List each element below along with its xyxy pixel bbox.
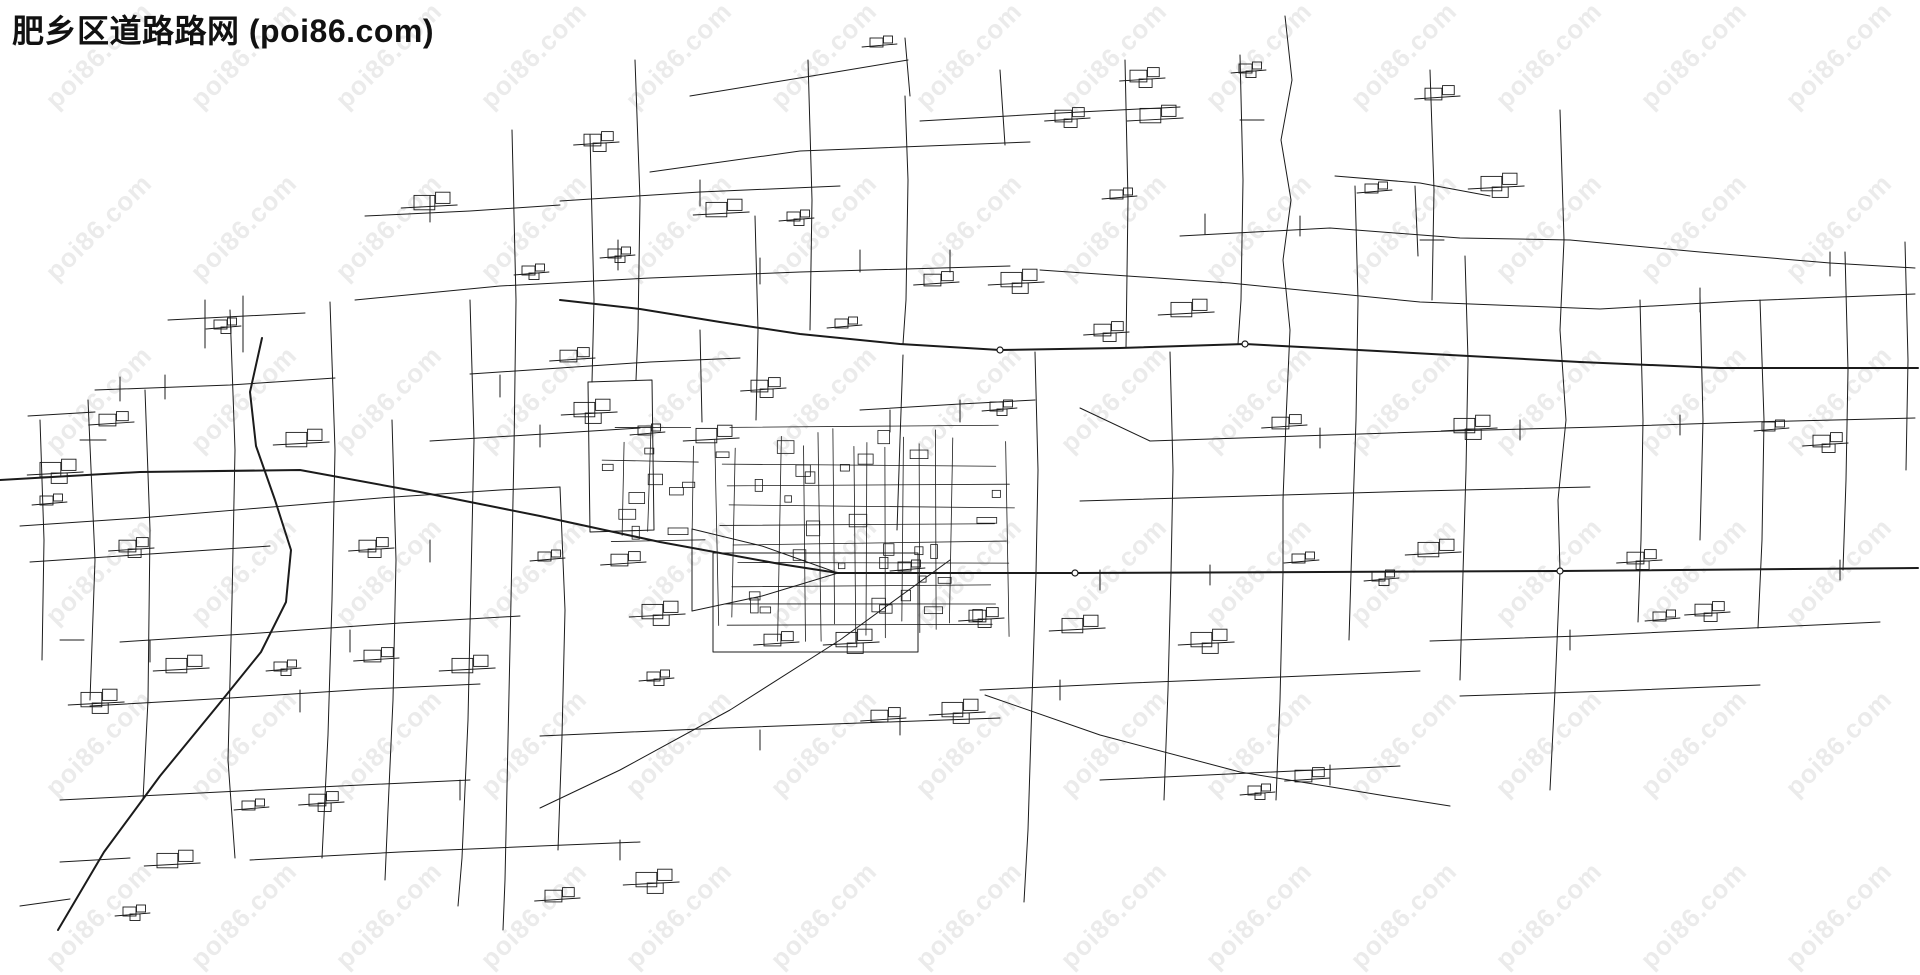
village-cluster	[1704, 613, 1717, 621]
village-road	[115, 913, 150, 916]
village-road	[861, 718, 907, 721]
village-cluster	[602, 132, 614, 141]
village-cluster	[1440, 539, 1454, 550]
village-road	[683, 438, 739, 441]
town-block	[931, 545, 938, 559]
page-title: 肥乡区道路路网 (poi86.com)	[12, 6, 434, 52]
village-cluster	[647, 883, 663, 893]
main-road	[0, 470, 838, 573]
village-cluster	[653, 615, 669, 625]
village-cluster	[1306, 552, 1315, 559]
road	[143, 390, 150, 800]
village-road	[1084, 332, 1130, 335]
village-road	[1284, 560, 1319, 563]
village-cluster	[128, 549, 141, 557]
town-street	[854, 446, 856, 642]
road	[897, 355, 903, 530]
road	[28, 412, 95, 416]
village-cluster	[1012, 283, 1028, 293]
road	[690, 60, 908, 96]
town-street	[692, 446, 693, 532]
village-road	[89, 422, 135, 425]
road	[1758, 300, 1764, 628]
road	[1460, 256, 1468, 680]
road	[355, 266, 1010, 300]
village-cluster	[801, 210, 810, 217]
road-network-svg	[0, 0, 1920, 942]
town-block	[619, 509, 636, 519]
village-cluster	[288, 660, 297, 667]
village-road	[1262, 425, 1308, 428]
village-cluster	[1476, 415, 1490, 426]
village-cluster	[642, 604, 663, 618]
village-cluster	[166, 658, 187, 672]
village-road	[550, 358, 596, 361]
road-junction-node	[1072, 570, 1078, 576]
village-cluster	[51, 473, 67, 483]
village-road	[1127, 118, 1183, 121]
village-road	[1685, 612, 1731, 615]
village-cluster	[696, 428, 717, 442]
village-cluster	[536, 264, 545, 271]
town-block	[793, 550, 806, 561]
town-block	[858, 454, 873, 464]
road	[1080, 408, 1150, 441]
village-road	[823, 642, 879, 645]
town-street	[727, 624, 992, 625]
village-cluster	[382, 648, 394, 657]
road	[1150, 418, 1915, 441]
road	[1638, 300, 1643, 622]
village-road	[144, 863, 200, 866]
village-road	[1120, 78, 1166, 81]
road-junction-node	[1242, 341, 1248, 347]
road	[1843, 252, 1848, 570]
road	[1180, 228, 1570, 240]
town-block	[669, 488, 683, 495]
town-block	[924, 607, 942, 614]
village-cluster	[706, 202, 727, 216]
village-cluster	[1492, 187, 1508, 197]
village-road	[1364, 578, 1399, 581]
village-road	[862, 44, 897, 47]
road	[1000, 70, 1005, 145]
road	[365, 205, 560, 216]
village-cluster	[636, 872, 657, 886]
road	[385, 420, 396, 880]
road	[95, 378, 335, 390]
road	[470, 358, 740, 374]
village-road	[693, 212, 749, 215]
village-cluster	[664, 601, 678, 612]
town-street	[935, 430, 936, 629]
village-road	[754, 642, 800, 645]
village-cluster	[1262, 784, 1271, 791]
village-road	[1049, 628, 1105, 631]
road	[540, 560, 950, 808]
road	[250, 842, 640, 860]
village-cluster	[849, 317, 858, 324]
village-road	[630, 432, 665, 435]
village-cluster	[889, 708, 901, 717]
village-road	[1415, 96, 1461, 99]
village-road	[273, 442, 329, 445]
village-cluster	[942, 272, 954, 281]
village-cluster	[563, 888, 575, 897]
village-cluster	[728, 199, 742, 210]
village-road	[623, 882, 679, 885]
town-street	[727, 484, 1009, 486]
road	[808, 60, 812, 330]
town-block	[838, 563, 844, 569]
village-road	[401, 205, 457, 208]
village-cluster	[1112, 322, 1124, 331]
village-cluster	[92, 703, 108, 713]
town-street	[622, 442, 624, 535]
road	[1276, 16, 1292, 800]
town-block	[992, 490, 1000, 497]
village-road	[741, 388, 787, 391]
town-block	[938, 577, 951, 583]
village-road	[109, 548, 155, 551]
main-road	[838, 568, 1918, 573]
road	[430, 428, 640, 441]
village-cluster	[1290, 415, 1302, 424]
village-cluster	[1667, 610, 1676, 617]
village-cluster	[1313, 768, 1325, 777]
road	[903, 96, 908, 344]
village-cluster	[62, 459, 76, 470]
village-cluster	[760, 389, 773, 397]
village-cluster	[964, 699, 978, 710]
village-cluster	[953, 713, 969, 723]
town-block	[878, 431, 890, 444]
village-cluster	[658, 869, 672, 880]
village-cluster	[978, 619, 991, 627]
village-cluster	[377, 538, 389, 547]
road	[540, 718, 1000, 736]
road	[1570, 240, 1915, 268]
village-cluster	[81, 692, 102, 706]
road	[905, 38, 910, 96]
village-cluster	[1379, 182, 1388, 189]
village-cluster	[137, 905, 146, 912]
road	[635, 60, 640, 380]
town-street	[778, 436, 782, 641]
village-cluster	[436, 192, 450, 203]
road	[1164, 352, 1173, 800]
village-cluster	[1023, 269, 1037, 280]
village-cluster	[1084, 615, 1098, 626]
village-road	[629, 614, 685, 617]
village-road	[929, 712, 985, 715]
road	[713, 553, 918, 652]
road	[558, 487, 565, 850]
town-block	[648, 474, 662, 485]
town-street	[730, 425, 998, 427]
village-road	[266, 668, 301, 671]
village-cluster	[1202, 643, 1218, 653]
village-road	[1240, 792, 1275, 795]
town-block	[977, 517, 997, 523]
village-cluster	[1064, 119, 1077, 127]
town-block	[777, 441, 794, 454]
village-cluster	[1171, 302, 1192, 316]
village-cluster	[188, 655, 202, 666]
town-block	[629, 493, 645, 504]
village-road	[439, 668, 495, 671]
village-cluster	[1418, 542, 1439, 556]
village-cluster	[1062, 618, 1083, 632]
village-cluster	[308, 429, 322, 440]
town-street	[866, 442, 867, 635]
road	[1700, 296, 1703, 540]
village-cluster	[987, 608, 999, 617]
town-street	[1006, 442, 1009, 637]
village-cluster	[117, 412, 129, 421]
town-street	[732, 448, 735, 617]
town-street	[733, 541, 1006, 545]
village-cluster	[54, 494, 63, 501]
road	[40, 420, 44, 660]
village-cluster	[629, 552, 641, 561]
village-road	[574, 142, 620, 145]
village-cluster	[327, 792, 339, 801]
village-road	[153, 668, 209, 671]
road	[985, 695, 1450, 806]
town-block	[716, 452, 729, 458]
village-road	[354, 658, 400, 661]
village-cluster	[1193, 299, 1207, 310]
village-road	[1178, 642, 1234, 645]
village-cluster	[552, 550, 561, 557]
village-road	[32, 502, 67, 505]
road	[1125, 60, 1128, 348]
village-road	[349, 548, 395, 551]
village-cluster	[574, 402, 595, 416]
village-cluster	[593, 143, 606, 151]
village-road	[639, 678, 674, 681]
village-road	[988, 282, 1044, 285]
road	[1100, 766, 1400, 780]
road	[980, 671, 1420, 690]
road	[228, 310, 235, 858]
village-road	[1645, 618, 1680, 621]
town-street	[732, 585, 991, 587]
road	[1080, 487, 1590, 501]
village-road	[1468, 186, 1524, 189]
village-cluster	[1503, 173, 1517, 184]
road	[20, 899, 70, 906]
road	[60, 780, 470, 800]
village-road	[299, 802, 345, 805]
road	[503, 130, 516, 930]
village-cluster	[782, 632, 794, 641]
village-cluster	[1139, 79, 1152, 87]
town-street	[720, 524, 995, 526]
village-cluster	[884, 36, 893, 43]
village-cluster	[596, 399, 610, 410]
village-cluster	[1636, 561, 1649, 569]
village-road	[1754, 428, 1789, 431]
village-cluster	[1140, 108, 1161, 122]
village-cluster	[103, 689, 117, 700]
road	[322, 302, 335, 858]
town-block	[796, 465, 810, 476]
village-cluster	[1481, 176, 1502, 190]
road	[700, 330, 702, 422]
village-road	[535, 898, 581, 901]
village-cluster	[858, 629, 872, 640]
town-block	[760, 607, 771, 613]
road	[458, 300, 474, 906]
village-cluster	[769, 378, 781, 387]
village-road	[234, 807, 269, 810]
road	[88, 400, 95, 700]
village-cluster	[256, 799, 265, 806]
town-block	[785, 496, 792, 502]
village-cluster	[179, 850, 193, 861]
road	[60, 858, 130, 862]
road	[650, 142, 1030, 172]
village-road	[561, 412, 617, 415]
road	[692, 573, 838, 611]
village-road	[206, 326, 241, 329]
road	[120, 616, 520, 642]
village-road	[827, 325, 862, 328]
town-street	[715, 440, 719, 626]
road	[920, 107, 1180, 121]
town-block	[602, 464, 613, 470]
road	[590, 135, 594, 382]
town-street	[729, 505, 1014, 508]
village-cluster	[1001, 272, 1022, 286]
village-cluster	[40, 462, 61, 476]
village-road	[1617, 560, 1663, 563]
village-cluster	[1443, 86, 1455, 95]
village-road	[982, 408, 1017, 411]
village-cluster	[228, 318, 237, 325]
village-cluster	[414, 195, 435, 209]
road	[1430, 622, 1880, 641]
town-block	[807, 521, 820, 536]
village-road	[1405, 552, 1461, 555]
road-junction-node	[1557, 568, 1563, 574]
road	[1460, 685, 1760, 696]
village-cluster	[137, 538, 149, 547]
village-cluster	[157, 853, 178, 867]
village-cluster	[1253, 62, 1262, 69]
village-cluster	[1103, 333, 1116, 341]
village-cluster	[1645, 550, 1657, 559]
village-road	[27, 472, 83, 475]
village-cluster	[1831, 433, 1843, 442]
road	[1905, 242, 1908, 470]
village-cluster	[942, 702, 963, 716]
village-cluster	[836, 632, 857, 646]
village-road	[1803, 443, 1849, 446]
village-cluster	[1713, 602, 1725, 611]
village-road	[1045, 118, 1091, 121]
village-cluster	[1148, 68, 1160, 77]
road	[755, 216, 758, 420]
village-cluster	[718, 425, 732, 436]
village-cluster	[912, 560, 921, 567]
town-block	[668, 528, 688, 535]
road	[20, 487, 560, 526]
village-road	[1285, 778, 1331, 781]
town-street	[818, 432, 821, 641]
village-road	[601, 562, 647, 565]
village-cluster	[368, 549, 381, 557]
village-cluster	[286, 432, 307, 446]
village-cluster	[661, 670, 670, 677]
village-cluster	[474, 655, 488, 666]
road-junction-node	[997, 347, 1003, 353]
village-cluster	[578, 348, 590, 357]
village-road	[1158, 312, 1214, 315]
village-cluster	[1213, 629, 1227, 640]
village-cluster	[1191, 632, 1212, 646]
village-cluster	[585, 413, 601, 423]
village-cluster	[1822, 444, 1835, 452]
road	[1024, 352, 1038, 902]
village-road	[914, 282, 960, 285]
road	[1550, 110, 1566, 790]
road	[1238, 55, 1243, 344]
village-road	[514, 272, 549, 275]
village-road	[530, 558, 565, 561]
road	[1415, 186, 1418, 256]
main-road	[58, 338, 291, 930]
village-road	[959, 618, 1005, 621]
town-street	[833, 429, 835, 624]
village-cluster	[622, 247, 631, 254]
